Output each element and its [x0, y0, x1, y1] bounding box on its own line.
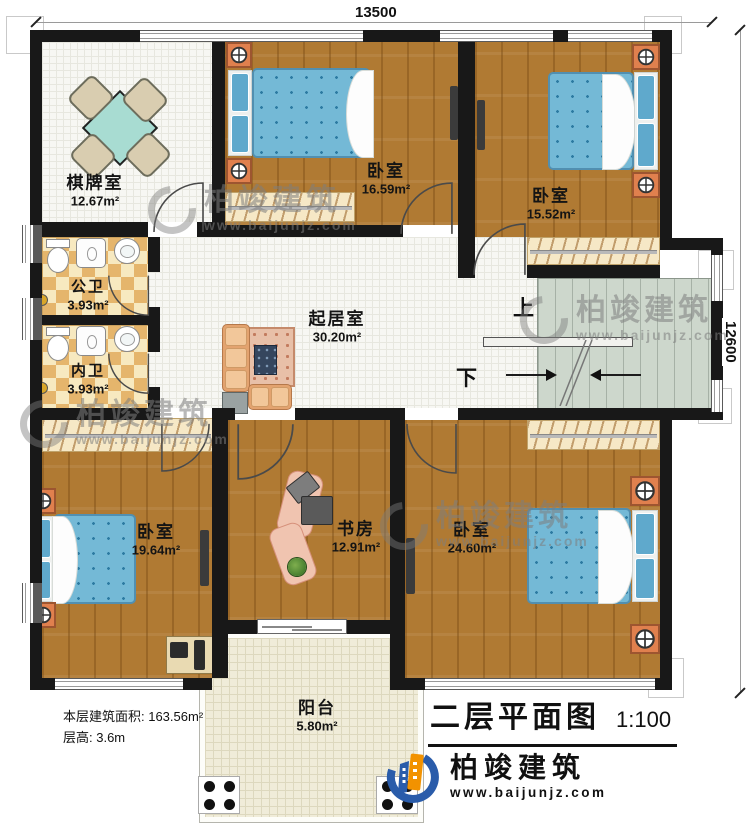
wall-segment — [212, 30, 225, 237]
wall-segment — [148, 237, 160, 272]
coffee-table — [254, 345, 277, 375]
title-text: 二层平面图 — [430, 692, 600, 736]
door-chess-room — [153, 182, 205, 234]
door-bedroom-top-right — [473, 223, 527, 277]
window — [140, 30, 363, 42]
floor-info: 本层建筑面积: 163.56m² 层高: 3.6m — [63, 706, 203, 749]
label-public-bath: 公卫3.93m² — [67, 279, 108, 314]
wall-segment — [347, 620, 405, 634]
tv — [200, 530, 209, 586]
wall-segment — [225, 225, 403, 237]
bed-sheet — [346, 70, 374, 158]
wall-segment — [30, 222, 148, 237]
dimension-line-right — [740, 30, 741, 693]
label-balcony: 阳台5.80m² — [296, 697, 337, 735]
door-study — [236, 422, 294, 480]
wall-segment — [212, 420, 228, 678]
window — [568, 30, 652, 42]
door-bedroom-bottom-left — [160, 422, 210, 472]
bed-pillows — [228, 70, 252, 156]
window — [440, 30, 553, 42]
door-private-bath — [108, 352, 150, 394]
stairs-down-label: 下 — [456, 362, 477, 392]
washing-machine — [76, 326, 106, 356]
nightstand-lamp — [226, 42, 252, 68]
tv — [477, 100, 485, 150]
sink — [114, 238, 140, 264]
wardrobe — [527, 420, 660, 450]
wardrobe — [527, 237, 660, 265]
stair-arrow — [590, 369, 601, 381]
wall-segment — [212, 408, 235, 420]
window — [55, 678, 183, 690]
computer-monitor — [301, 496, 333, 525]
brand-logo: 柏竣建筑 www.baijunjz.com — [378, 748, 607, 806]
window — [22, 583, 42, 623]
label-living-room: 起居室30.20m² — [309, 308, 366, 346]
title-scale: 1:100 — [616, 707, 671, 733]
door-bedroom-bottom-right — [406, 422, 458, 474]
wall-segment — [660, 408, 672, 690]
window — [22, 298, 42, 340]
floor-height-text: 层高: 3.6m — [63, 727, 203, 748]
dresser-item — [194, 640, 205, 670]
floor-area-text: 本层建筑面积: 163.56m² — [63, 706, 203, 727]
toilet-bowl — [47, 335, 69, 361]
dimension-line-top — [35, 22, 712, 23]
label-study: 书房12.91m² — [332, 518, 380, 556]
plant — [288, 558, 306, 576]
window — [22, 225, 42, 263]
drawing-title: 二层平面图 1:100 — [428, 692, 677, 747]
wall-segment — [30, 315, 160, 325]
nightstand-lamp — [630, 476, 660, 506]
wall-segment — [390, 420, 405, 678]
wardrobe — [225, 192, 355, 222]
dimension-right-value: 12600 — [722, 318, 739, 366]
stair-direction-line — [506, 374, 546, 376]
wall-segment — [212, 620, 257, 634]
floor-plan: 上 下 棋牌室12.67m² 卧室16.59m² — [0, 0, 750, 823]
brand-logo-icon — [378, 748, 440, 806]
wall-segment — [527, 265, 660, 278]
balcony-column — [198, 776, 240, 814]
wall-segment — [458, 408, 660, 420]
label-private-bath: 内卫3.93m² — [67, 363, 108, 398]
nightstand-lamp — [226, 158, 252, 184]
tv — [450, 86, 458, 140]
label-bedroom-top-right: 卧室15.52m² — [527, 185, 575, 223]
washing-machine — [76, 238, 106, 268]
window — [711, 380, 723, 412]
tv — [406, 538, 415, 594]
brand-name: 柏竣建筑 — [450, 754, 607, 782]
sliding-door — [257, 619, 347, 634]
brand-site: www.baijunjz.com — [450, 785, 607, 800]
nightstand-lamp — [630, 624, 660, 654]
window — [425, 678, 655, 690]
wall-segment — [660, 30, 672, 250]
nightstand-lamp — [632, 172, 660, 198]
stairs-up-label: 上 — [513, 292, 534, 322]
label-bedroom-bottom-right: 卧室24.60m² — [448, 519, 496, 557]
sink — [114, 326, 140, 352]
bed-pillows — [632, 510, 658, 602]
window — [711, 255, 723, 301]
wall-segment — [30, 408, 160, 420]
dresser-item — [170, 642, 188, 658]
stair-arrow — [546, 369, 557, 381]
wall-segment — [295, 408, 405, 420]
label-bedroom-bottom-left: 卧室19.64m² — [132, 521, 180, 559]
sofa — [222, 324, 250, 392]
label-bedroom-top-middle: 卧室16.59m² — [362, 160, 410, 198]
sofa-chaise — [248, 384, 292, 410]
toilet-bowl — [47, 247, 69, 273]
nightstand-lamp — [632, 44, 660, 70]
stair-direction-line — [601, 374, 641, 376]
door-public-bath — [108, 274, 150, 316]
bed-pillows — [634, 72, 658, 170]
label-chess-room: 棋牌室12.67m² — [67, 172, 124, 210]
dimension-top-value: 13500 — [352, 4, 400, 21]
